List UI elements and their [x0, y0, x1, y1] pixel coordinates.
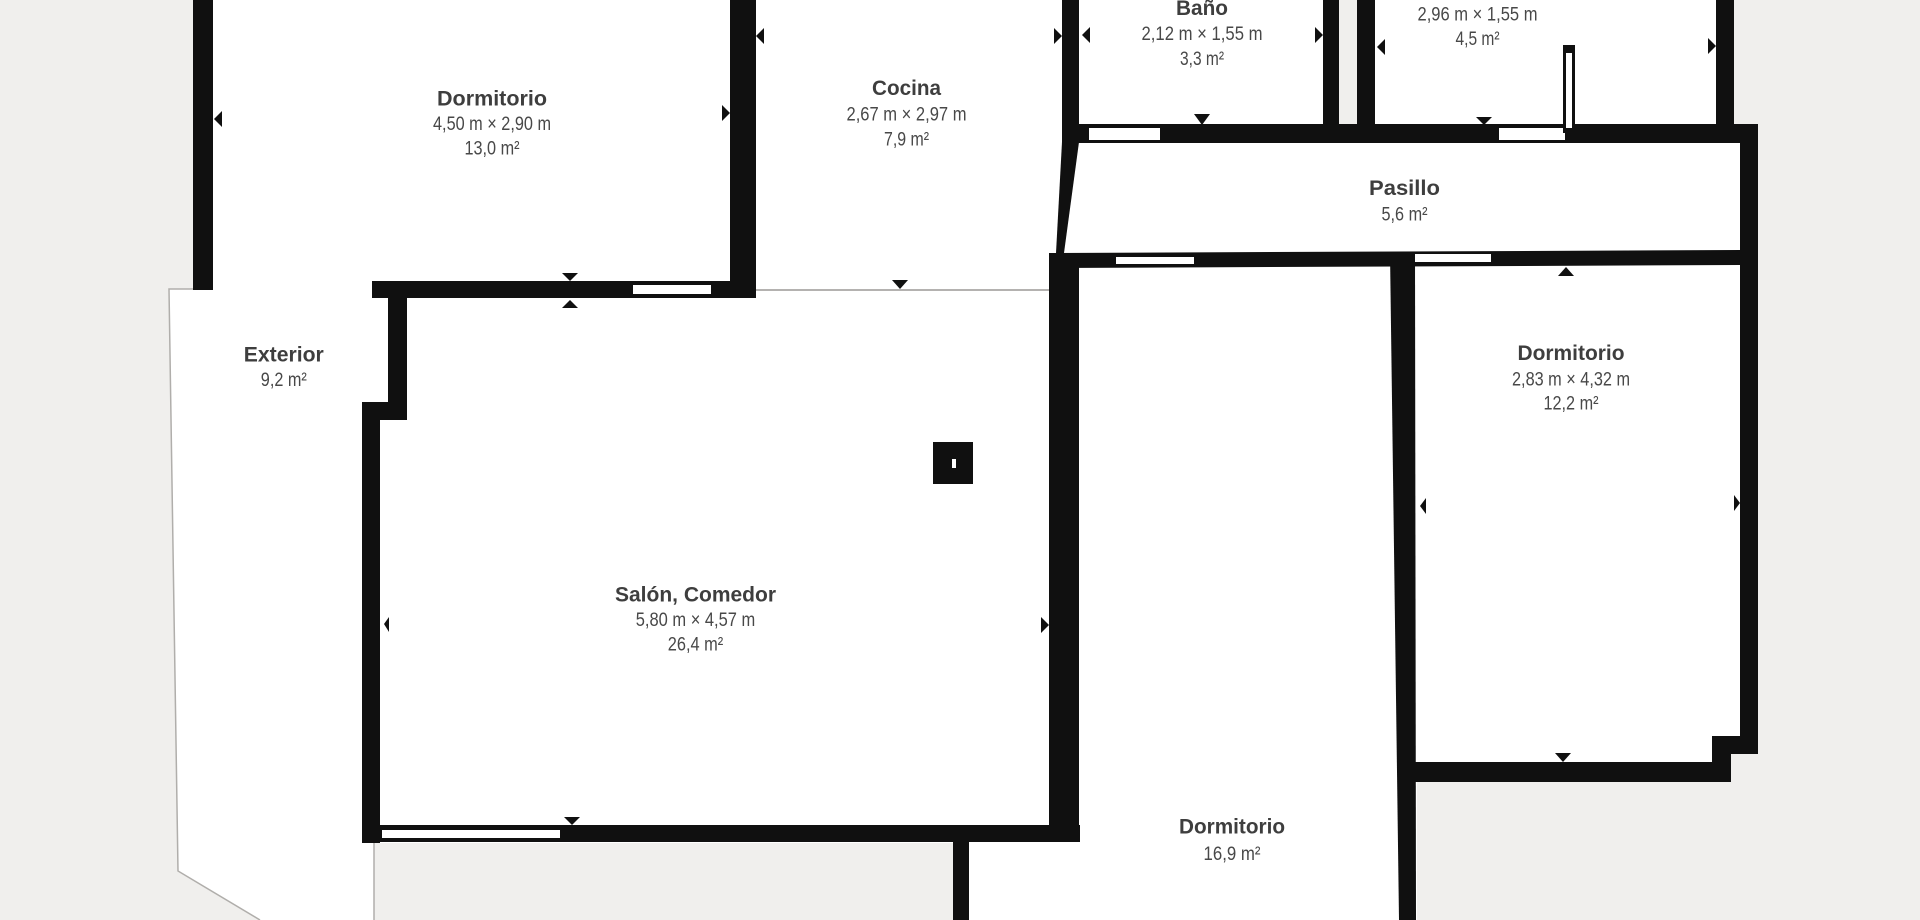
svg-text:5,6 m²: 5,6 m²: [1382, 204, 1428, 226]
svg-text:4,5 m²: 4,5 m²: [1456, 28, 1500, 50]
svg-text:Baño: Baño: [1176, 0, 1228, 20]
svg-text:Exterior: Exterior: [244, 343, 325, 367]
svg-text:Cocina: Cocina: [872, 76, 942, 100]
svg-text:Dormitorio: Dormitorio: [1179, 815, 1285, 839]
svg-text:26,4 m²: 26,4 m²: [668, 634, 724, 656]
svg-text:7,9 m²: 7,9 m²: [884, 129, 929, 151]
svg-text:5,80 m × 4,57 m: 5,80 m × 4,57 m: [636, 609, 756, 631]
svg-text:2,83 m × 4,32 m: 2,83 m × 4,32 m: [1512, 369, 1630, 391]
svg-text:9,2 m²: 9,2 m²: [261, 369, 307, 391]
svg-text:Dormitorio: Dormitorio: [1518, 341, 1625, 365]
svg-text:Salón, Comedor: Salón, Comedor: [615, 583, 777, 607]
svg-text:2,67 m × 2,97 m: 2,67 m × 2,97 m: [847, 104, 967, 126]
svg-text:2,96 m × 1,55 m: 2,96 m × 1,55 m: [1418, 4, 1538, 26]
svg-text:12,2 m²: 12,2 m²: [1544, 393, 1599, 415]
svg-text:Pasillo: Pasillo: [1369, 176, 1440, 200]
svg-text:3,3 m²: 3,3 m²: [1180, 48, 1224, 70]
svg-text:16,9 m²: 16,9 m²: [1204, 843, 1261, 865]
svg-text:2,12 m × 1,55 m: 2,12 m × 1,55 m: [1142, 23, 1263, 45]
svg-text:4,50 m × 2,90 m: 4,50 m × 2,90 m: [433, 113, 551, 135]
svg-text:13,0 m²: 13,0 m²: [465, 138, 520, 160]
svg-text:Dormitorio: Dormitorio: [437, 87, 547, 111]
